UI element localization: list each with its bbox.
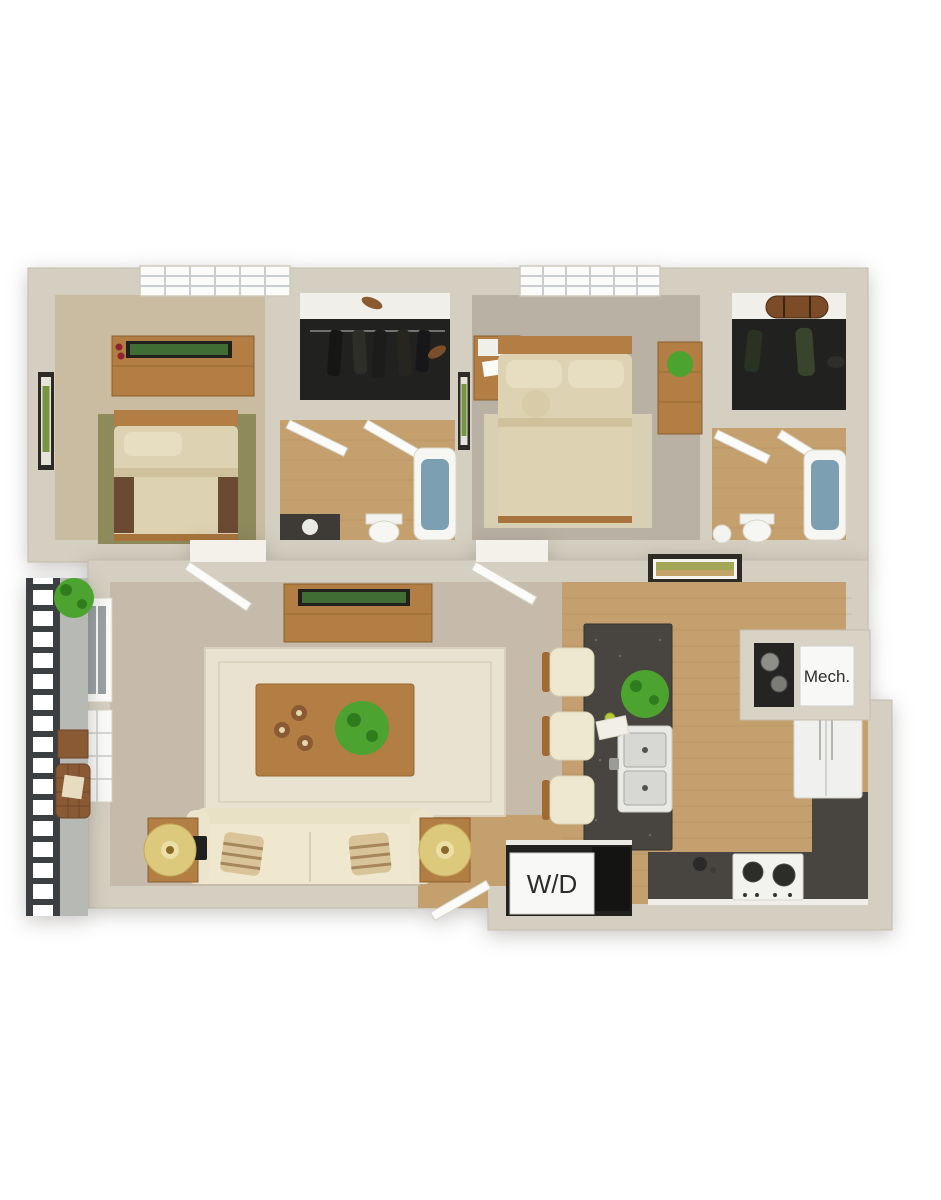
footboard — [114, 534, 238, 541]
island-plant-icon — [621, 670, 669, 718]
toilet-icon — [366, 514, 402, 543]
hat-icon — [827, 356, 845, 368]
mech-label: Mech. — [804, 667, 850, 686]
bathroom-2 — [712, 428, 846, 543]
bar-stools — [542, 648, 594, 824]
table-plant-icon — [335, 701, 389, 755]
balcony — [26, 578, 94, 916]
headboard — [114, 410, 238, 426]
bathroom-1-vanity — [280, 514, 340, 540]
bedroom-1-doorway — [190, 540, 266, 562]
burner-icon — [743, 862, 763, 882]
balcony-wicker-chair — [56, 764, 90, 818]
round-pillow — [522, 390, 550, 418]
bar-stool — [550, 712, 594, 760]
bedroom-2-dresser — [658, 342, 702, 434]
bedroom-2-window — [520, 266, 660, 296]
laundry-closet: W/D — [506, 840, 632, 916]
closet-2 — [732, 293, 846, 410]
bathtub — [804, 450, 846, 540]
mechanical-equipment-bay — [754, 643, 794, 707]
sofa — [186, 808, 434, 884]
bathtub — [414, 448, 456, 540]
balcony-plant-icon — [54, 578, 94, 618]
faucet-icon — [609, 758, 619, 770]
tv-screen — [130, 344, 228, 355]
striped-throw-pillow — [348, 832, 392, 876]
double-sink — [609, 726, 672, 812]
bathroom-1 — [280, 420, 456, 543]
bedroom-2-wall-art — [458, 372, 470, 450]
chair-cushion — [62, 775, 85, 800]
bedroom-1 — [38, 266, 290, 544]
floorplan-render-canvas: Mech. W/D — [0, 0, 941, 1200]
burner-icon — [773, 864, 795, 886]
living-room — [82, 540, 562, 920]
tv-console — [284, 584, 432, 642]
kitchen-island — [584, 624, 672, 850]
living-wing: Mech. W/D — [82, 540, 892, 930]
bedroom-2 — [458, 266, 702, 540]
bedroom-2-doorway — [476, 540, 548, 562]
footboard — [498, 516, 632, 523]
mechanical-closet: Mech. — [740, 630, 870, 720]
refrigerator — [794, 710, 862, 798]
water-heater-icon — [771, 676, 787, 692]
wine-bottle-icon — [116, 344, 123, 351]
bedroom-1-window — [140, 266, 290, 296]
right-end-table — [419, 818, 471, 882]
closet-1 — [300, 293, 450, 400]
headboard — [498, 336, 632, 354]
bedroom-1-bed — [98, 410, 256, 544]
balcony-railing-icon — [26, 578, 60, 916]
washer-dryer-unit — [592, 847, 630, 911]
potted-plant-icon — [667, 351, 693, 377]
apartment-3d-floorplan: Mech. W/D — [0, 0, 941, 1200]
pillow — [506, 360, 562, 388]
balcony-side-table — [58, 730, 88, 758]
bar-stool — [550, 776, 594, 824]
wine-bottle-icon — [118, 353, 125, 360]
bedroom-1-dresser — [112, 336, 254, 396]
wd-label: W/D — [527, 869, 578, 899]
range-stove — [733, 854, 803, 900]
pillow — [568, 360, 624, 388]
water-heater-icon — [761, 653, 779, 671]
bedroom-1-wall-art — [38, 372, 54, 470]
pillow — [124, 432, 182, 456]
bar-stool — [550, 648, 594, 696]
coffee-table — [256, 684, 414, 776]
pedestal-sink-icon — [713, 525, 731, 543]
bedroom-wing — [28, 266, 868, 562]
tv-screen — [302, 592, 406, 603]
left-end-table — [144, 818, 207, 882]
duffel-bag-icon — [766, 296, 828, 318]
hallway-wall-art — [648, 554, 742, 584]
bedroom-2-bed — [484, 336, 652, 528]
kettle-icon — [693, 857, 707, 871]
striped-throw-pillow — [219, 831, 264, 876]
